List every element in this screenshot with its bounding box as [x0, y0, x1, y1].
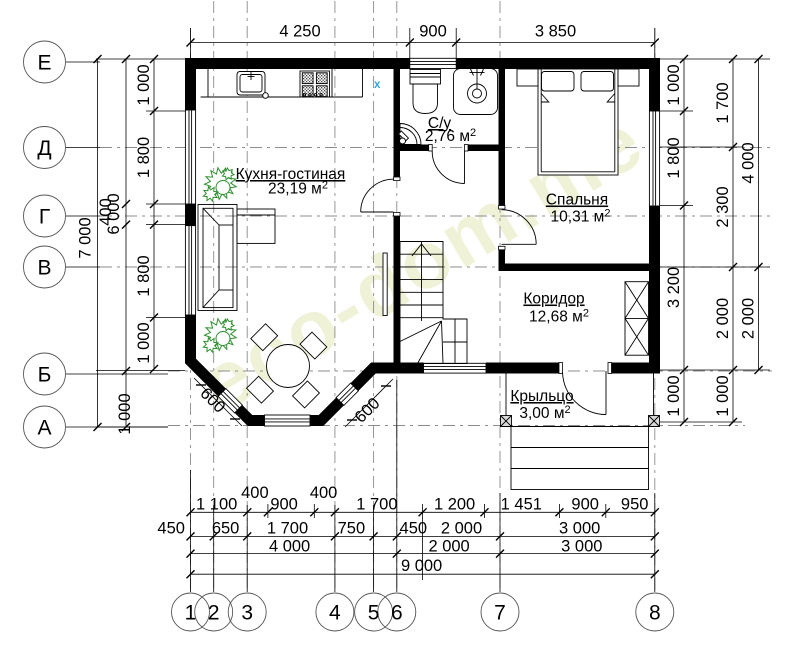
svg-text:2 000: 2 000	[740, 298, 758, 339]
svg-text:12,68 м2: 12,68 м2	[529, 308, 589, 326]
svg-text:2,76 м2: 2,76 м2	[425, 127, 476, 145]
svg-text:Е: Е	[37, 52, 51, 75]
svg-text:4 250: 4 250	[279, 23, 320, 41]
svg-text:x: x	[374, 79, 381, 91]
svg-text:Крыльцо: Крыльцо	[510, 388, 573, 405]
svg-text:3,00 м2: 3,00 м2	[519, 404, 570, 422]
svg-text:6 000: 6 000	[105, 193, 123, 234]
svg-text:5: 5	[368, 602, 380, 625]
svg-text:7: 7	[494, 602, 506, 625]
svg-text:4: 4	[329, 602, 341, 625]
svg-text:2 300: 2 300	[714, 186, 732, 227]
svg-text:1 000: 1 000	[665, 64, 683, 105]
svg-text:3 850: 3 850	[535, 23, 576, 41]
svg-text:Спальня: Спальня	[546, 192, 608, 209]
svg-text:1 200: 1 200	[434, 496, 475, 514]
svg-text:400: 400	[310, 484, 338, 502]
svg-text:2 000: 2 000	[441, 520, 482, 538]
svg-text:750: 750	[338, 520, 366, 538]
svg-text:1 800: 1 800	[665, 137, 683, 178]
svg-text:Б: Б	[38, 364, 52, 387]
svg-text:1: 1	[185, 602, 197, 625]
svg-text:7 000: 7 000	[77, 217, 95, 258]
svg-text:Д: Д	[37, 137, 51, 160]
svg-text:4 000: 4 000	[740, 142, 758, 183]
svg-text:3: 3	[241, 602, 253, 625]
svg-text:10,31 м2: 10,31 м2	[551, 208, 611, 226]
svg-text:650: 650	[212, 520, 240, 538]
svg-text:23,19 м2: 23,19 м2	[268, 180, 328, 198]
svg-text:900: 900	[270, 496, 298, 514]
svg-text:1 100: 1 100	[196, 496, 237, 514]
svg-text:1 800: 1 800	[135, 137, 153, 178]
svg-text:1 700: 1 700	[267, 520, 308, 538]
svg-text:3 000: 3 000	[559, 520, 600, 538]
svg-text:950: 950	[621, 496, 649, 514]
svg-text:1 000: 1 000	[116, 393, 134, 434]
svg-text:450: 450	[157, 520, 185, 538]
svg-text:1 000: 1 000	[135, 322, 153, 363]
svg-text:900: 900	[571, 496, 599, 514]
svg-text:1 800: 1 800	[135, 255, 153, 296]
svg-text:1 000: 1 000	[135, 64, 153, 105]
svg-text:Г: Г	[39, 206, 50, 229]
svg-text:1 451: 1 451	[501, 496, 542, 514]
svg-text:400: 400	[241, 484, 269, 502]
svg-text:9 000: 9 000	[401, 557, 442, 575]
svg-text:8: 8	[649, 602, 661, 625]
svg-text:1 700: 1 700	[356, 496, 397, 514]
svg-text:450: 450	[400, 520, 428, 538]
svg-text:4 000: 4 000	[269, 538, 310, 556]
svg-text:2 000: 2 000	[428, 538, 469, 556]
svg-text:Коридор: Коридор	[523, 291, 584, 308]
svg-text:3 000: 3 000	[561, 538, 602, 556]
svg-text:900: 900	[419, 23, 447, 41]
svg-text:3 200: 3 200	[665, 267, 683, 308]
svg-text:1 700: 1 700	[714, 82, 732, 123]
svg-text:В: В	[37, 257, 51, 280]
svg-text:А: А	[37, 417, 51, 440]
svg-text:1 000: 1 000	[714, 375, 732, 416]
svg-text:2 000: 2 000	[714, 298, 732, 339]
svg-text:6: 6	[391, 602, 403, 625]
svg-text:1 000: 1 000	[665, 375, 683, 416]
svg-text:2: 2	[208, 602, 220, 625]
